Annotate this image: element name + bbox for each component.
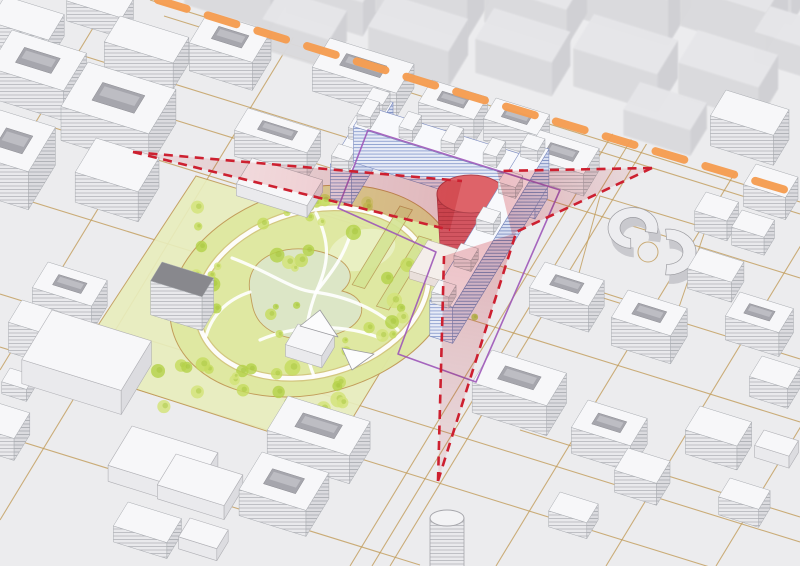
tree: [381, 272, 394, 285]
tree: [196, 357, 210, 371]
tree: [337, 397, 349, 409]
tree: [232, 372, 239, 379]
tree: [397, 304, 405, 312]
tree: [181, 362, 192, 373]
site-svg: [0, 0, 800, 566]
tree: [196, 241, 207, 252]
tree: [385, 315, 399, 329]
tree: [318, 218, 326, 226]
tree: [265, 309, 276, 320]
tree: [191, 385, 204, 398]
tree: [191, 201, 204, 214]
tree: [293, 302, 300, 309]
tree: [294, 253, 308, 267]
tree: [282, 255, 296, 269]
tree: [237, 384, 250, 397]
tree: [214, 262, 222, 270]
tree: [271, 368, 282, 379]
cylindrical-tower-white: [430, 510, 464, 566]
tree: [194, 222, 202, 230]
tree: [342, 337, 348, 343]
tree: [257, 218, 269, 230]
tree: [151, 364, 165, 378]
tree: [389, 331, 397, 339]
masterplan-canvas: [0, 0, 800, 566]
tree: [332, 381, 342, 391]
tree: [157, 400, 170, 413]
tree: [275, 330, 283, 338]
tree: [363, 322, 374, 333]
tree: [273, 304, 279, 310]
tree: [284, 360, 300, 376]
tree: [346, 225, 361, 240]
tree: [376, 329, 389, 342]
tree: [272, 386, 284, 398]
